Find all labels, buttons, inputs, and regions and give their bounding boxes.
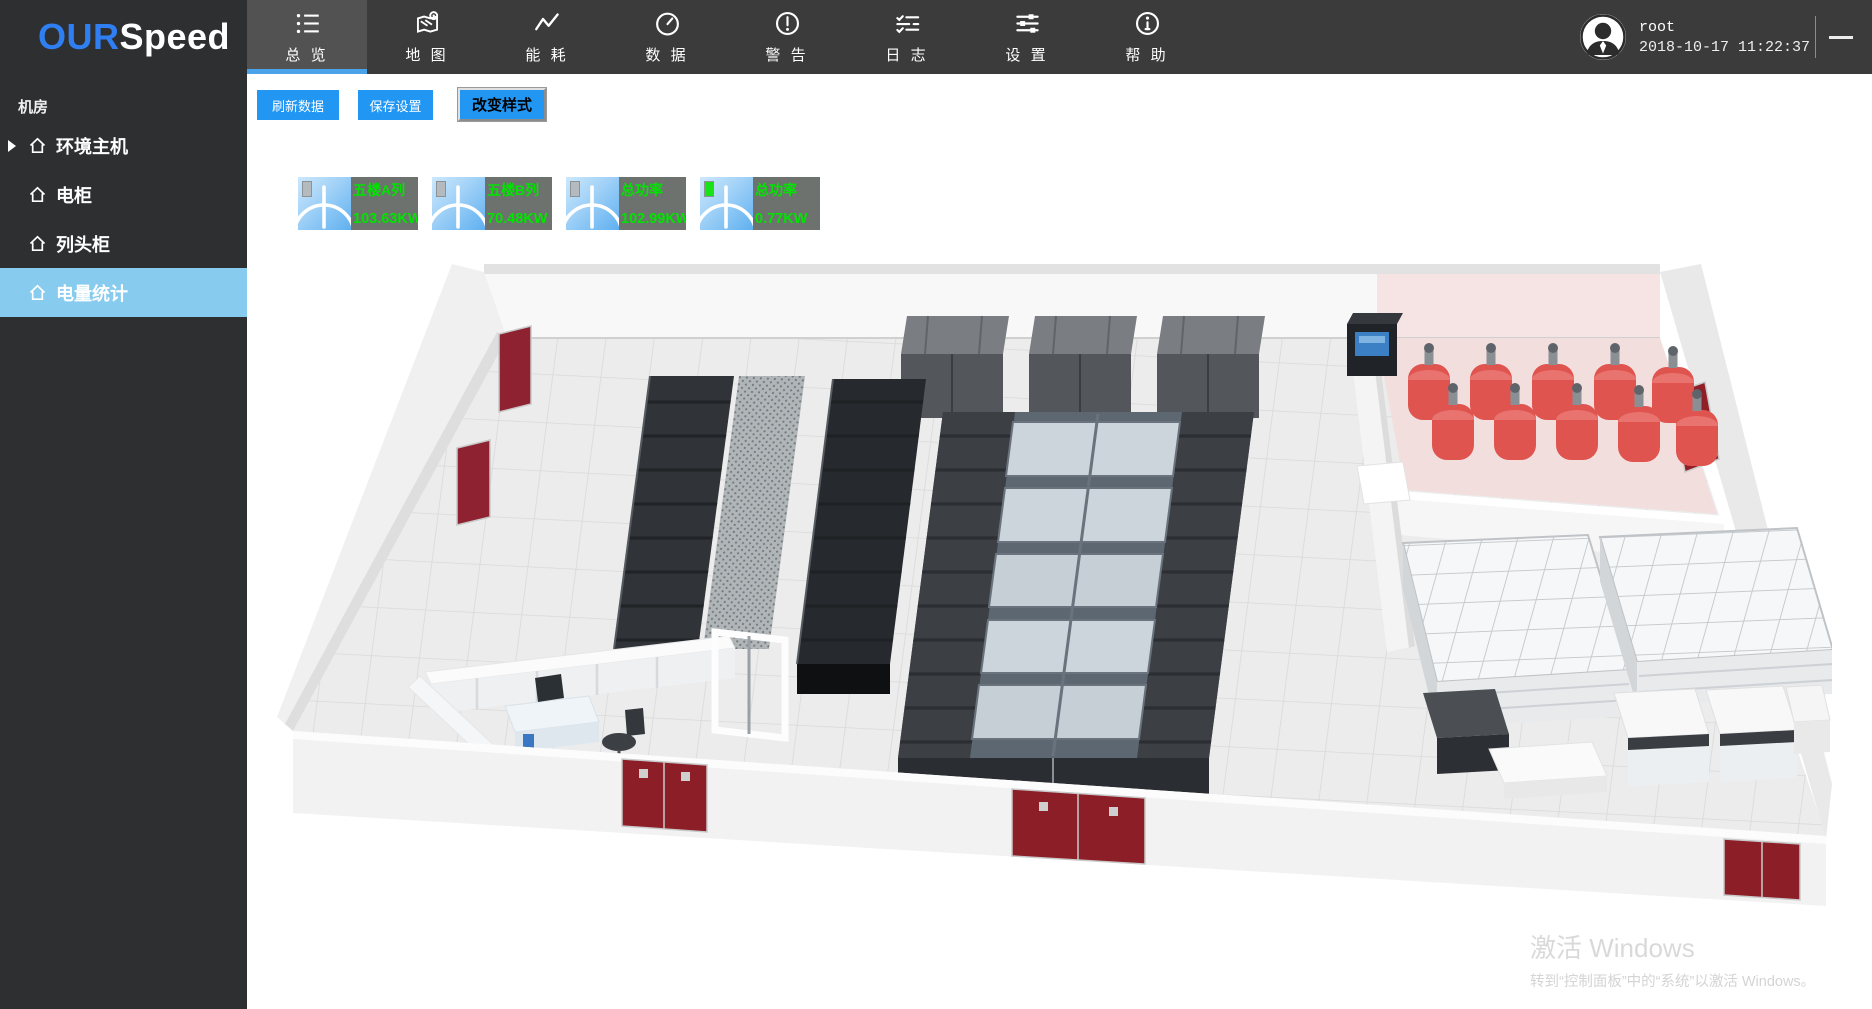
toolbar: 刷新数据 保存设置 改变样式 xyxy=(257,90,546,121)
user-icon xyxy=(1580,14,1626,60)
expand-caret-icon[interactable] xyxy=(8,140,16,152)
tab-label: 总 览 xyxy=(285,44,328,65)
topbar-divider xyxy=(1815,16,1816,58)
meter-total-power-2[interactable]: 总功率 0.77KW xyxy=(700,177,820,230)
tab-data[interactable]: 数 据 xyxy=(607,0,727,74)
sidebar-item-power-stats[interactable]: 电量统计 xyxy=(0,268,247,317)
meter-label: 五楼B列 xyxy=(487,180,551,200)
crac-unit-1 xyxy=(1614,689,1709,786)
home-icon xyxy=(28,283,47,302)
map-icon xyxy=(414,10,441,37)
office-monitor xyxy=(535,674,564,702)
left-wall-door-2 xyxy=(457,440,490,525)
windows-activation-watermark: 激活 Windows 转到“控制面板”中的“系统”以激活 Windows。 xyxy=(1530,928,1815,991)
alert-icon xyxy=(774,10,801,37)
home-icon xyxy=(28,185,47,204)
sidebar-item-power-cabinet[interactable]: 电柜 xyxy=(0,170,247,219)
meter-label: 总功率 xyxy=(755,180,819,200)
meter-floor5-row-b[interactable]: 五楼B列 70.48KW xyxy=(432,177,552,230)
save-settings-button[interactable]: 保存设置 xyxy=(358,90,433,120)
gauge-tile-icon xyxy=(566,177,619,230)
meter-value: 0.77KW xyxy=(755,211,819,227)
minimize-icon xyxy=(1829,36,1853,39)
sidebar-item-label: 电柜 xyxy=(56,182,92,208)
status-led xyxy=(436,181,446,197)
wall-opening xyxy=(1357,462,1410,504)
meter-floor5-row-a[interactable]: 五楼A列 103.63KW xyxy=(298,177,418,230)
gauge-tile-icon xyxy=(298,177,351,230)
refresh-data-button[interactable]: 刷新数据 xyxy=(257,90,339,120)
app-window: OURSpeed 机房 环境主机 电柜 列头柜 电量统计 xyxy=(0,0,1872,1009)
tab-label: 能 耗 xyxy=(525,44,568,65)
help-icon xyxy=(1134,10,1161,37)
tab-logs[interactable]: 日 志 xyxy=(847,0,967,74)
topbar: 总 览 地 图 能 耗 数 据 警 告 日 志 xyxy=(247,0,1872,74)
user-datetime: 2018-10-17 11:22:37 xyxy=(1639,39,1810,56)
tab-settings[interactable]: 设 置 xyxy=(967,0,1087,74)
change-style-button[interactable]: 改变样式 xyxy=(458,88,546,121)
back-wall-cabinets xyxy=(901,316,1265,418)
gauge-tile-icon xyxy=(700,177,753,230)
power-meters: 五楼A列 103.63KW 五楼B列 70.48KW xyxy=(298,177,820,230)
tab-label: 地 图 xyxy=(405,44,448,65)
user-name: root xyxy=(1639,19,1810,36)
status-led xyxy=(570,181,580,197)
nav-tabs: 总 览 地 图 能 耗 数 据 警 告 日 志 xyxy=(247,0,1207,74)
tab-help[interactable]: 帮 助 xyxy=(1087,0,1207,74)
logo-part-speed: Speed xyxy=(120,16,231,58)
tab-energy[interactable]: 能 耗 xyxy=(487,0,607,74)
list-icon xyxy=(294,10,321,37)
meter-value: 103.63KW xyxy=(353,211,417,227)
logo-part-our: OUR xyxy=(38,16,120,58)
log-icon xyxy=(894,10,921,37)
energy-icon xyxy=(534,10,561,37)
tab-overview[interactable]: 总 览 xyxy=(247,0,367,74)
main-content: 刷新数据 保存设置 改变样式 五楼A列 103.63KW xyxy=(247,74,1872,1009)
user-box: root 2018-10-17 11:22:37 xyxy=(1580,0,1810,74)
sidebar-item-label: 电量统计 xyxy=(56,280,128,306)
machine-room-scene xyxy=(277,264,1832,914)
fire-suppression-room xyxy=(1377,338,1724,562)
home-icon xyxy=(28,136,47,155)
sidebar: OURSpeed 机房 环境主机 电柜 列头柜 电量统计 xyxy=(0,0,247,1009)
sidebar-section-title: 机房 xyxy=(0,74,247,121)
cold-aisle-containment xyxy=(898,412,1254,796)
gauge-tile-icon xyxy=(432,177,485,230)
avatar[interactable] xyxy=(1580,14,1626,60)
home-icon xyxy=(28,234,47,253)
minimize-button[interactable] xyxy=(1824,0,1858,74)
meter-value: 70.48KW xyxy=(487,211,551,227)
gauge-icon xyxy=(654,10,681,37)
control-panel xyxy=(1347,313,1403,376)
sidebar-item-env-host[interactable]: 环境主机 xyxy=(0,121,247,170)
meter-value: 102.99KW xyxy=(621,211,685,227)
tab-alerts[interactable]: 警 告 xyxy=(727,0,847,74)
tab-label: 设 置 xyxy=(1005,44,1048,65)
watermark-title: 激活 Windows xyxy=(1530,928,1815,965)
tab-label: 日 志 xyxy=(885,44,928,65)
left-wall-door-1 xyxy=(499,326,531,412)
sidebar-item-label: 环境主机 xyxy=(56,133,128,159)
meter-label: 五楼A列 xyxy=(353,180,417,200)
tab-label: 帮 助 xyxy=(1125,44,1168,65)
sidebar-item-row-head-cabinet[interactable]: 列头柜 xyxy=(0,219,247,268)
machine-room-3d-view[interactable] xyxy=(277,264,1832,914)
tab-label: 数 据 xyxy=(645,44,688,65)
status-led xyxy=(704,181,714,197)
white-slab-table xyxy=(1489,742,1607,799)
watermark-subtitle: 转到“控制面板”中的“系统”以激活 Windows。 xyxy=(1530,970,1815,991)
app-logo: OURSpeed xyxy=(0,0,247,74)
settings-icon xyxy=(1014,10,1041,37)
tab-label: 警 告 xyxy=(765,44,808,65)
meter-label: 总功率 xyxy=(621,180,685,200)
battery-rack-block-2 xyxy=(1600,528,1832,706)
status-led xyxy=(302,181,312,197)
meter-total-power-1[interactable]: 总功率 102.99KW xyxy=(566,177,686,230)
sidebar-item-label: 列头柜 xyxy=(56,231,110,257)
tab-map[interactable]: 地 图 xyxy=(367,0,487,74)
